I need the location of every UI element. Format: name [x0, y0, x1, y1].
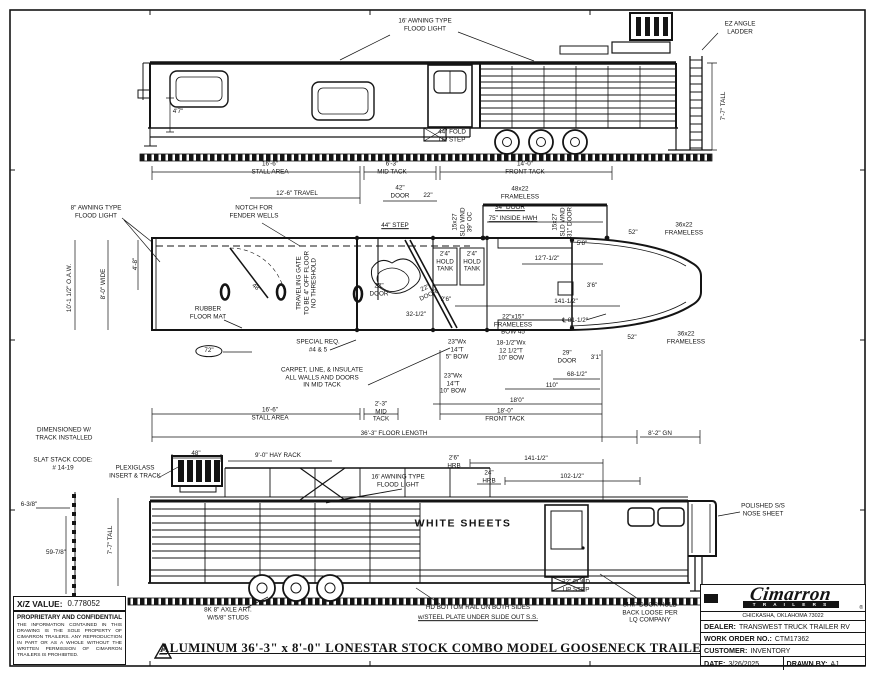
annotation-label: 102-1/2" — [560, 473, 584, 481]
annotation-label: 32-1/2" — [406, 311, 426, 319]
annotation-layer: 16' AWNING TYPE FLOOD LIGHTEZ ANGLE LADD… — [0, 0, 875, 676]
drawn-by-label: DRAWN BY: — [787, 659, 828, 668]
annotation-label: 52" — [627, 334, 636, 342]
brand-logo-row: Cimarron T R A I L E R S ® — [701, 585, 865, 611]
annotation-label: TRAVELING GATE TO BE 4" OFF FLOOR NO THR… — [295, 251, 318, 315]
annotation-label: 2'6" — [441, 296, 451, 304]
annotation-label: 72" — [195, 345, 222, 357]
proprietary-notice: PROPRIETARY AND CONFIDENTIAL THE INFORMA… — [13, 611, 126, 665]
annotation-label: 12'7-1/2" — [535, 255, 560, 263]
annotation-label: 36x22 FRAMELESS — [665, 221, 703, 236]
annotation-label: 8" AWNING TYPE FLOOD LIGHT — [71, 204, 122, 219]
annotation-label: 22" DOOR — [370, 282, 389, 297]
annotation-label: 16'-6" STALL AREA — [251, 406, 288, 421]
annotation-label: 2'4" HOLD TANK — [436, 250, 454, 273]
annotation-label: 7'-7" TALL — [107, 526, 115, 555]
proprietary-text: THE INFORMATION CONTAINED IN THIS DRAWIN… — [17, 623, 122, 659]
annotation-label: 48" — [191, 450, 200, 458]
annotation-label: EZ ANGLE LADDER — [725, 20, 756, 35]
annotation-label: 7'-7" TALL — [720, 92, 728, 121]
annotation-label: 6'-3" MID TACK — [377, 160, 407, 175]
annotation-label: 14'-0" FRONT TACK — [505, 160, 545, 175]
annotation-label: 8'-0" WIDE — [100, 269, 108, 300]
annotation-label: 3'1" — [591, 354, 601, 362]
annotation-label: 141-1/2" — [524, 455, 548, 463]
annotation-label: 4'7" — [173, 108, 183, 116]
annotation-label: 8K 8" AXLE ART. W/5/8" STUDS — [204, 606, 252, 621]
proprietary-title: PROPRIETARY AND CONFIDENTIAL — [17, 614, 122, 621]
annotation-label: 2'4" HOLD TANK — [463, 250, 481, 273]
brand-address: CHICKASHA, OKLAHOMA 73022 — [701, 611, 865, 620]
annotation-label: 16' AWNING TYPE FLOOD LIGHT — [371, 473, 424, 488]
customer-row: CUSTOMER:INVENTORY — [701, 644, 865, 656]
annotation-label: SPECIAL REQ. #4 & 5 — [296, 338, 340, 353]
annotation-label: 8'-2" GN — [648, 430, 672, 438]
annotation-label: 16'-6" STALL AREA — [251, 160, 288, 175]
annotation-label: 3'6" — [587, 282, 597, 290]
date-value: 3/26/2025 — [728, 661, 759, 668]
annotation-label: 34" DOOR — [495, 204, 525, 212]
annotation-label: HD BOTTOM RAIL ON BOTH SIDES — [426, 604, 530, 612]
annotation-label: 52" — [628, 229, 637, 237]
annotation-label: 2'-3" MID TACK — [373, 400, 389, 423]
dealer-label: DEALER: — [704, 622, 736, 631]
annotation-label: 68-1/2" — [567, 371, 587, 379]
brand-logo: Cimarron — [749, 585, 833, 605]
annotation-label: 32" FOLD UP STEP — [562, 578, 590, 593]
annotation-label: PLEXIGLASS INSERT & TRACK — [109, 464, 161, 479]
dealer-value: TRANSWEST TRUCK TRAILER RV — [739, 624, 850, 631]
work-order-label: WORK ORDER NO.: — [704, 634, 772, 643]
annotation-label: 12'-6" TRAVEL — [276, 190, 318, 198]
annotation-label: ℄ 81-1/2" — [562, 317, 588, 325]
date-label: DATE: — [704, 659, 725, 668]
annotation-label: 23"Wx 14"T 5" BOW — [446, 338, 469, 361]
annotation-label: 18'-0" FRONT TACK — [485, 407, 525, 422]
annotation-label: 22" DOOR — [415, 281, 439, 303]
annotation-label: 18'0" — [510, 397, 524, 405]
drawing-title: ALUMINUM 36'-3" x 8'-0" LONESTAR STOCK C… — [160, 641, 700, 656]
title-block: Cimarron T R A I L E R S ® CHICKASHA, OK… — [700, 584, 866, 666]
annotation-label: 42" DOOR — [391, 184, 410, 199]
date-row: DATE:3/26/2025 DRAWN BY:AJ — [701, 656, 865, 670]
annotation-label: 15x27 SLD WND 31" DOOR — [551, 207, 574, 237]
drawn-by-value: AJ — [831, 661, 839, 668]
annotation-label: 9'-0" HAY RACK — [255, 452, 301, 460]
annotation-label: 18-1/2"Wx 12 1/2"T 10" BOW — [496, 339, 525, 362]
annotation-label: 36'-3" FLOOR LENGTH — [361, 430, 428, 438]
xz-value-box: X/Z VALUE: 0.778052 — [13, 596, 126, 611]
customer-label: CUSTOMER: — [704, 646, 747, 655]
date-cell: DATE:3/26/2025 — [701, 657, 783, 670]
annotation-label: 24" HRB — [482, 469, 495, 484]
annotation-label: 10'-1 1/2" O.A.W. — [66, 264, 74, 312]
annotation-label: 23"Wx 14"T 10" BOW — [440, 372, 466, 395]
annotation-label: 44" FOLD UP STEP — [438, 128, 466, 143]
annotation-label: 16' AWNING TYPE FLOOD LIGHT — [398, 17, 451, 32]
annotation-label: 4'-8" — [132, 258, 140, 271]
annotation-label: DIMENSIONED W/ TRACK INSTALLED — [36, 426, 93, 441]
annotation-label: 29" DOOR — [558, 349, 577, 364]
annotation-label: SHIP DOOR HOLD BACK LOOSE PER LQ COMPANY — [622, 601, 677, 624]
annotation-label: RUBBER FLOOR MAT — [190, 305, 226, 320]
annotation-label: POLISHED S/S NOSE SHEET — [741, 502, 785, 517]
drawing-sheet: 16' AWNING TYPE FLOOD LIGHTEZ ANGLE LADD… — [0, 0, 875, 676]
revision-triangle-icon — [154, 642, 172, 660]
annotation-label: 110" — [546, 382, 558, 390]
dealer-row: DEALER:TRANSWEST TRUCK TRAILER RV — [701, 620, 865, 632]
work-order-value: CTM17362 — [775, 636, 809, 643]
drawn-by-cell: DRAWN BY:AJ — [783, 657, 866, 670]
annotation-label: CARPET, LINE, & INSULATE ALL WALLS AND D… — [281, 366, 363, 389]
annotation-label: 59-7/8" — [46, 549, 66, 557]
annotation-label: 22"x15" FRAMELESS BOW 45 — [494, 313, 532, 336]
annotation-label: 44" STEP — [381, 222, 408, 230]
annotation-label: 22" — [423, 192, 432, 200]
brand-logo-mark-icon — [704, 594, 718, 603]
annotation-label: 48x22 FRAMELESS — [501, 185, 539, 200]
xz-value-label: X/Z VALUE: — [17, 599, 62, 609]
annotation-label: 2'6" HRB — [447, 454, 460, 469]
annotation-label: w/STEEL PLATE UNDER SLIDE OUT S.S. — [418, 614, 538, 622]
xz-value: 0.778052 — [67, 599, 100, 608]
work-order-row: WORK ORDER NO.:CTM17362 — [701, 632, 865, 644]
annotation-label: 48" — [250, 282, 262, 294]
annotation-label: 75" INSIDE HWH — [489, 215, 538, 223]
annotation-label: NOTCH FOR FENDER WELLS — [230, 204, 279, 219]
annotation-label: SLAT STACK CODE: # 14-19 — [33, 456, 92, 471]
registered-mark-icon: ® — [859, 605, 863, 611]
customer-value: INVENTORY — [750, 648, 790, 655]
annotation-label: 5'8" — [577, 240, 587, 248]
annotation-label: 141-1/2" — [554, 298, 578, 306]
annotation-label: 15x27 SLD WND 39" OC — [451, 207, 474, 236]
annotation-label: 36x22 FRAMELESS — [667, 330, 705, 345]
annotation-label: 6-3/8" — [21, 501, 38, 509]
annotation-label: WHITE SHEETS — [415, 518, 512, 531]
